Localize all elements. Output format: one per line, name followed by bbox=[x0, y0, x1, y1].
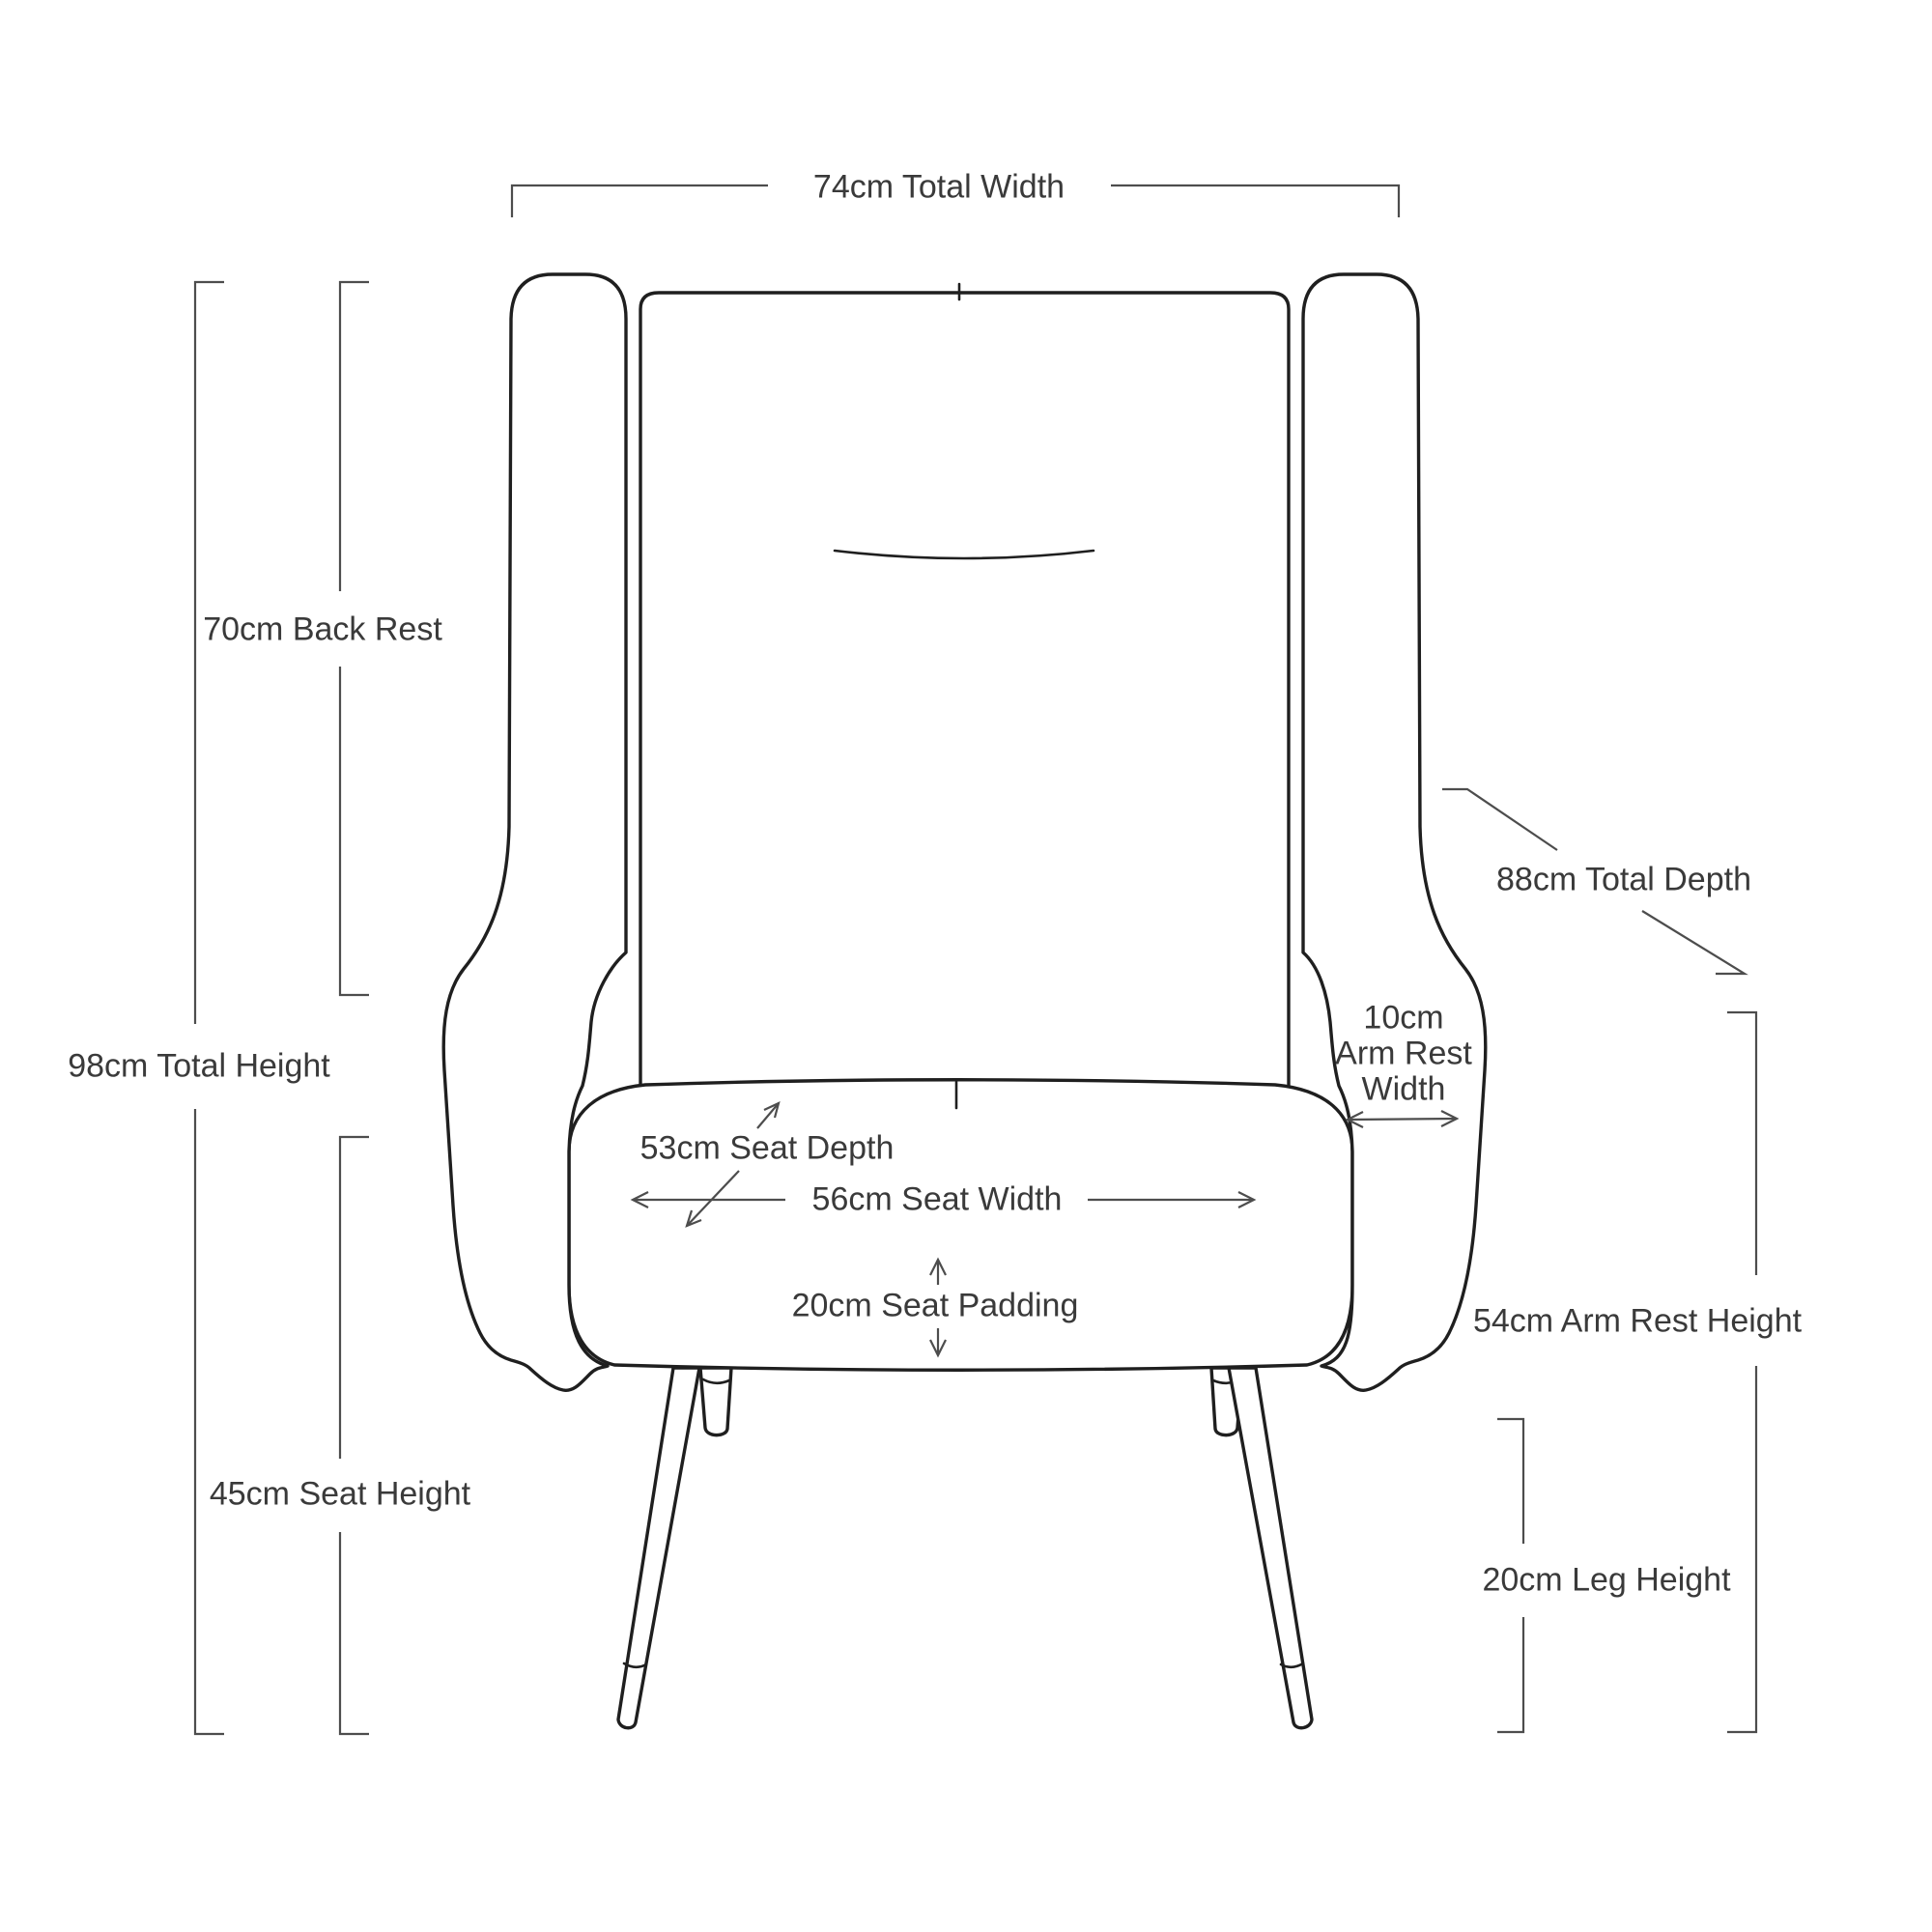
chair-outline bbox=[443, 274, 1486, 1728]
back-left-leg bbox=[700, 1368, 731, 1435]
leg-height-bracket-top bbox=[1497, 1419, 1523, 1544]
total-width-bracket-left bbox=[512, 185, 768, 217]
label-total-depth: 88cm Total Depth bbox=[1496, 863, 1751, 898]
arm-rest-height-bracket-bottom bbox=[1727, 1366, 1756, 1732]
label-arm-rest-height: 54cm Arm Rest Height bbox=[1473, 1304, 1802, 1340]
label-total-width: 74cm Total Width bbox=[813, 170, 1065, 206]
leg-height-bracket-bottom bbox=[1497, 1617, 1523, 1732]
label-seat-depth: 53cm Seat Depth bbox=[640, 1131, 895, 1167]
total-height-bracket-bottom bbox=[195, 1109, 224, 1734]
back-cushion bbox=[640, 293, 1289, 1135]
label-seat-padding: 20cm Seat Padding bbox=[792, 1289, 1079, 1324]
label-seat-height: 45cm Seat Height bbox=[210, 1477, 470, 1513]
back-rest-bracket-top bbox=[340, 282, 369, 591]
label-seat-width: 56cm Seat Width bbox=[812, 1182, 1063, 1218]
seat-height-bracket-top bbox=[340, 1137, 369, 1459]
label-arm-rest-width-line3: Width bbox=[1335, 1072, 1472, 1108]
label-back-rest: 70cm Back Rest bbox=[203, 612, 442, 648]
total-depth-diagonal-bottom bbox=[1642, 911, 1745, 974]
label-arm-rest-width-line2: Arm Rest bbox=[1335, 1037, 1472, 1072]
arm-rest-height-bracket-top bbox=[1727, 1012, 1756, 1275]
seat-height-bracket-bottom bbox=[340, 1532, 369, 1734]
armchair-dimension-diagram: 74cm Total Width 70cm Back Rest 98cm Tot… bbox=[0, 0, 1932, 1932]
label-arm-rest-width-line1: 10cm bbox=[1335, 1001, 1472, 1037]
front-right-leg bbox=[1229, 1368, 1312, 1728]
label-leg-height: 20cm Leg Height bbox=[1482, 1563, 1730, 1599]
label-arm-rest-width: 10cm Arm Rest Width bbox=[1335, 1001, 1472, 1108]
label-total-height: 98cm Total Height bbox=[68, 1049, 330, 1085]
total-height-bracket-top bbox=[195, 282, 224, 1024]
total-width-bracket-right bbox=[1111, 185, 1399, 217]
total-depth-diagonal-top bbox=[1442, 789, 1557, 850]
back-rest-bracket-bottom bbox=[340, 667, 369, 995]
front-left-leg bbox=[618, 1368, 699, 1728]
diagram-lineart bbox=[0, 0, 1932, 1932]
